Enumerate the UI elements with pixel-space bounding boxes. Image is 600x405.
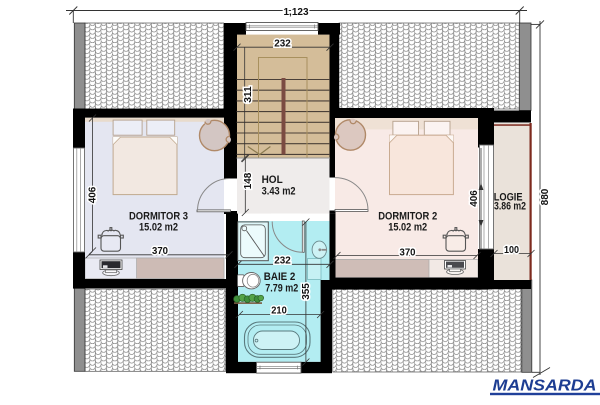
svg-text:1,123: 1,123 (283, 7, 308, 18)
svg-text:7.79 m2: 7.79 m2 (265, 282, 298, 294)
svg-text:406: 406 (88, 186, 99, 203)
svg-text:MANSARDA: MANSARDA (493, 378, 597, 395)
svg-text:232: 232 (274, 255, 291, 266)
svg-text:232: 232 (274, 38, 291, 49)
svg-text:148: 148 (243, 172, 254, 189)
svg-text:370: 370 (400, 248, 416, 259)
svg-text:15.02 m2: 15.02 m2 (388, 222, 427, 234)
svg-text:3.43 m2: 3.43 m2 (262, 186, 296, 198)
svg-text:HOL: HOL (262, 174, 283, 186)
svg-text:355: 355 (301, 283, 312, 300)
svg-text:210: 210 (271, 305, 287, 316)
svg-text:311: 311 (243, 86, 254, 103)
svg-text:406: 406 (469, 190, 480, 207)
svg-text:3.86 m2: 3.86 m2 (494, 201, 526, 213)
svg-text:100: 100 (504, 245, 519, 256)
svg-text:15.02 m2: 15.02 m2 (139, 222, 178, 234)
svg-text:370: 370 (152, 246, 168, 257)
svg-text:BAIE 2: BAIE 2 (264, 271, 296, 283)
svg-text:880: 880 (540, 188, 551, 205)
